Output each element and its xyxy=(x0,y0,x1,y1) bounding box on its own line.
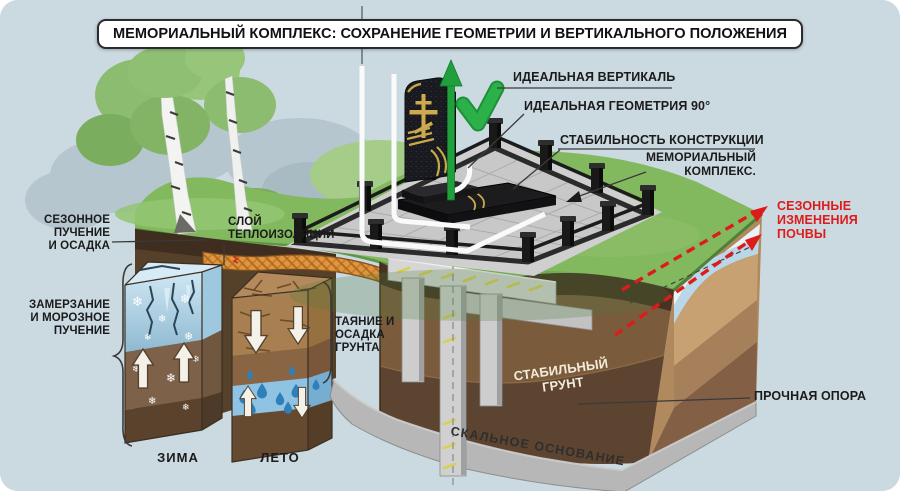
illustration: ❄❄ ❄❄ ❄❄ ❄❄ ❄❄ xyxy=(0,0,900,491)
page-title: МЕМОРИАЛЬНЫЙ КОМПЛЕКС: СОХРАНЕНИЕ ГЕОМЕТ… xyxy=(97,19,803,49)
callout-seasonal-heave: СЕЗОННОЕ ПУЧЕНИЕ И ОСАДКА xyxy=(26,214,110,253)
svg-text:❄: ❄ xyxy=(184,330,193,343)
svg-text:❄: ❄ xyxy=(158,314,166,325)
svg-text:❄: ❄ xyxy=(144,333,152,343)
winter-column: ❄❄ ❄❄ ❄❄ ❄❄ ❄❄ xyxy=(125,262,222,443)
label-summer: ЛЕТО xyxy=(248,451,312,466)
svg-text:❄: ❄ xyxy=(166,371,176,385)
callout-firm-support: ПРОЧНАЯ ОПОРА xyxy=(754,389,866,403)
callout-stability: СТАБИЛЬНОСТЬ КОНСТРУКЦИИ xyxy=(560,133,764,147)
callout-ideal-vertical: ИДЕАЛЬНАЯ ВЕРТИКАЛЬ xyxy=(513,70,675,84)
callout-seasonal-changes: СЕЗОННЫЕ ИЗМЕНЕНИЯ ПОЧВЫ xyxy=(777,199,858,241)
svg-text:❄: ❄ xyxy=(148,396,156,407)
label-winter: ЗИМА xyxy=(146,451,210,466)
callout-freeze-heave: ЗАМЕРЗАНИЕ И МОРОЗНОЕ ПУЧЕНИЕ xyxy=(20,299,110,338)
svg-text:❄: ❄ xyxy=(182,403,190,413)
callout-insulation-layer: СЛОЙ ТЕПЛОИЗОЛЯЦИИ xyxy=(228,216,335,242)
svg-text:❄: ❄ xyxy=(132,295,143,310)
callout-memorial-complex: МЕМОРИАЛЬНЫЙ КОМПЛЕКС. xyxy=(614,151,756,178)
callout-ideal-geometry: ИДЕАЛЬНАЯ ГЕОМЕТРИЯ 90° xyxy=(524,99,710,113)
svg-text:❄: ❄ xyxy=(180,292,190,306)
infographic-canvas: ❄❄ ❄❄ ❄❄ ❄❄ ❄❄ xyxy=(0,0,900,491)
callout-thaw-settlement: ТАЯНИЕ И ОСАДКА ГРУНТА xyxy=(335,316,394,355)
